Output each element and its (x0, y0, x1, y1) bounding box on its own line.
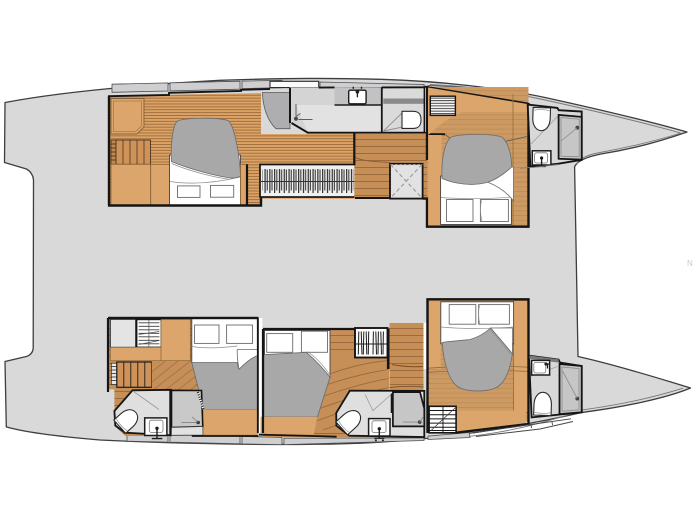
svg-text:N: N (687, 259, 693, 268)
